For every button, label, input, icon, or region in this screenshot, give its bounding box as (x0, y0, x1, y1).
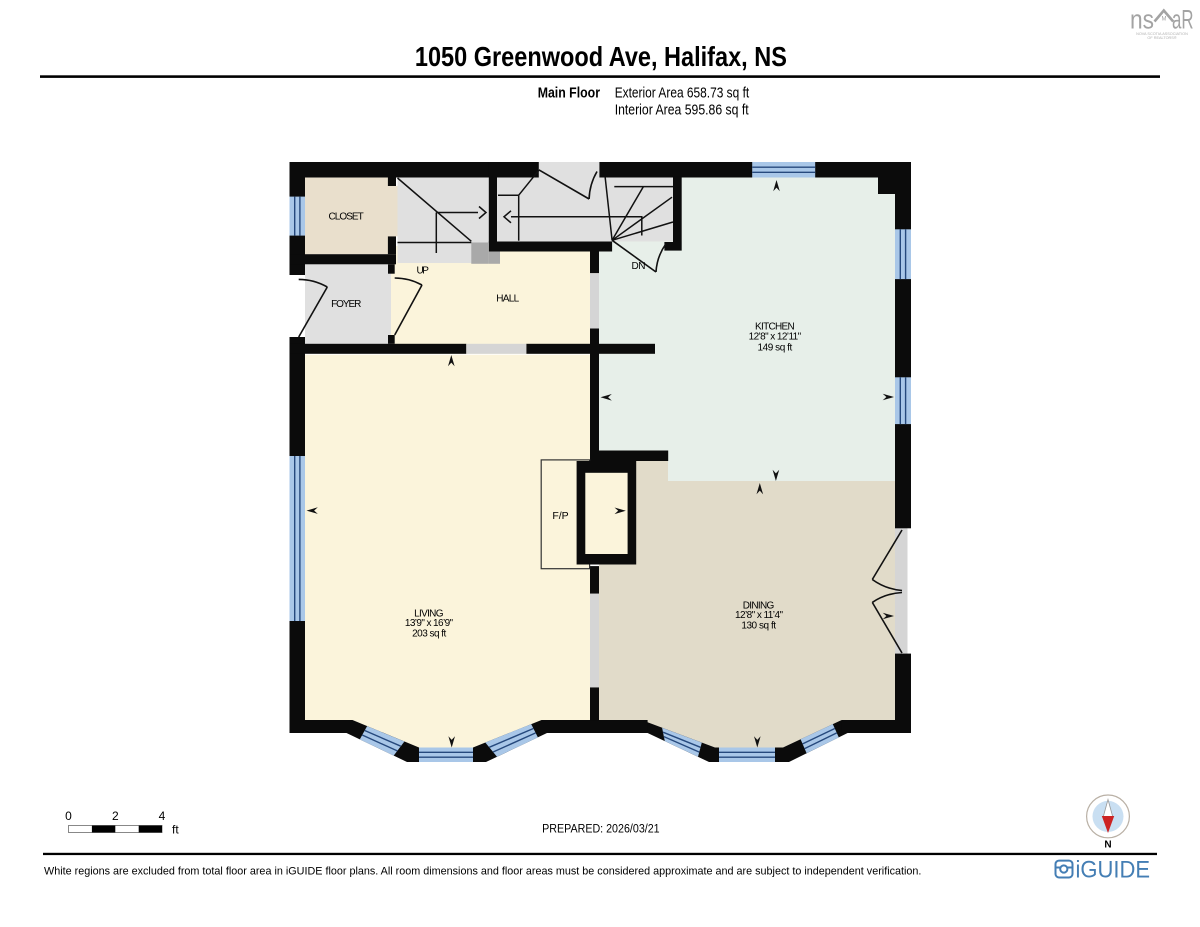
svg-text:UP: UP (416, 266, 429, 277)
svg-text:PREPARED: 2026/03/21: PREPARED: 2026/03/21 (542, 823, 660, 835)
svg-text:Interior Area 595.86 sq ft: Interior Area 595.86 sq ft (615, 101, 750, 118)
svg-text:130 sq ft: 130 sq ft (741, 620, 776, 631)
svg-text:DN: DN (632, 261, 646, 272)
svg-text:ft: ft (172, 823, 179, 837)
svg-text:ns: ns (1130, 5, 1154, 35)
svg-text:KITCHEN: KITCHEN (755, 321, 795, 332)
svg-text:1050 Greenwood Ave, Halifax, N: 1050 Greenwood Ave, Halifax, NS (415, 41, 787, 72)
svg-text:M: M (1162, 17, 1167, 23)
svg-text:aR: aR (1172, 5, 1194, 35)
svg-text:0: 0 (65, 809, 72, 823)
svg-text:4: 4 (159, 809, 166, 823)
svg-text:12’8" x 12’11": 12’8" x 12’11" (749, 332, 802, 343)
svg-text:CLOSET: CLOSET (328, 212, 363, 223)
svg-text:HALL: HALL (496, 294, 519, 305)
svg-text:Exterior Area 658.73 sq ft: Exterior Area 658.73 sq ft (615, 85, 750, 102)
svg-text:FOYER: FOYER (331, 299, 361, 310)
svg-text:Main Floor: Main Floor (538, 85, 600, 102)
svg-text:N: N (1104, 839, 1111, 850)
svg-text:OF REALTORS®: OF REALTORS® (1147, 36, 1176, 40)
svg-text:White regions are excluded fro: White regions are excluded from total fl… (44, 866, 921, 878)
svg-text:149 sq ft: 149 sq ft (758, 342, 793, 353)
svg-text:iGUIDE: iGUIDE (1076, 857, 1151, 884)
svg-text:2: 2 (112, 809, 119, 823)
svg-text:F/P: F/P (552, 510, 568, 522)
svg-text:203 sq ft: 203 sq ft (412, 629, 446, 640)
